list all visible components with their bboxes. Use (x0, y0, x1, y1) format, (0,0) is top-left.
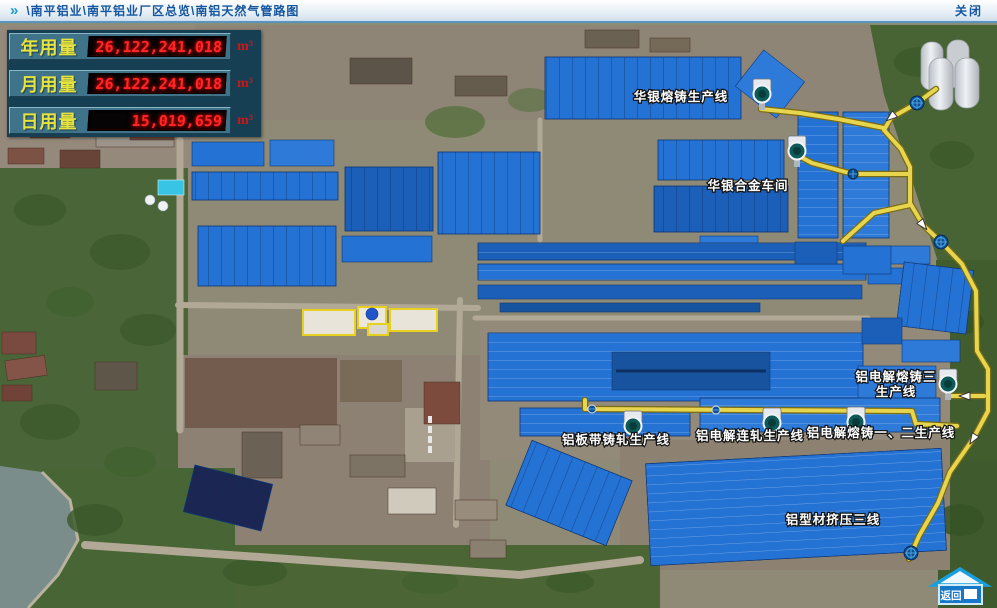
valve-icon (712, 406, 720, 414)
usage-month-label: 月用量 (10, 71, 88, 97)
label-elec-casting3-line1: 铝电解熔铸三 (855, 369, 936, 384)
scada-window: » \南平铝业\南平铝业厂区总览\南铝天然气管路图 关闭 年用量 26,122,… (0, 0, 997, 608)
close-button[interactable]: 关闭 (955, 2, 983, 19)
double-chevron-icon: » (10, 3, 18, 18)
usage-row-day: 日用量 15,019,659 m³ (9, 107, 259, 134)
valve-icon (934, 235, 948, 249)
label-extrusion3: 铝型材挤压三线 (786, 512, 881, 527)
usage-month-value: 26,122,241,018 (87, 73, 226, 94)
label-huayin-alloy: 华银合金车间 (707, 178, 788, 193)
label-elec-casting3-line2: 生产线 (876, 384, 917, 399)
usage-day-value: 15,019,659 (87, 110, 226, 131)
usage-panel: 年用量 26,122,241,018 m³ 月用量 26,122,241,018… (7, 30, 261, 137)
label-plate-strip: 铝板带铸轧生产线 (562, 432, 670, 447)
usage-year-value: 26,122,241,018 (87, 36, 226, 57)
usage-year-label: 年用量 (10, 34, 88, 60)
usage-day-unit: m³ (231, 113, 259, 129)
label-huayin-casting: 华银熔铸生产线 (634, 89, 729, 104)
usage-row-year: 年用量 26,122,241,018 m³ (9, 33, 259, 60)
label-casting-1-2: 铝电解熔铸一、二生产线 (807, 425, 956, 440)
usage-day-label: 日用量 (10, 108, 88, 134)
back-button-label: 返回 (941, 589, 962, 602)
home-window-icon (964, 589, 977, 599)
valve-icon (904, 546, 918, 560)
valve-icon (588, 405, 596, 413)
label-cont-rolling: 铝电解连轧生产线 (696, 428, 804, 443)
usage-row-month: 月用量 26,122,241,018 m³ (9, 70, 259, 97)
valve-icon (848, 169, 858, 179)
usage-year-unit: m³ (231, 39, 259, 55)
breadcrumb: \南平铝业\南平铝业厂区总览\南铝天然气管路图 (26, 2, 299, 19)
usage-month-unit: m³ (231, 76, 259, 92)
valve-icon (910, 96, 924, 110)
company-logo-roof (366, 308, 378, 320)
title-bar: » \南平铝业\南平铝业厂区总览\南铝天然气管路图 关闭 (0, 0, 997, 23)
